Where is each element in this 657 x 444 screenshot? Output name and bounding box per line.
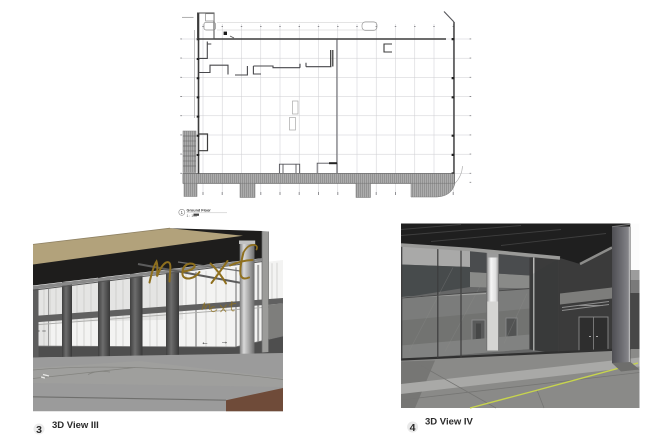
svg-text:3D View III: 3D View III (52, 420, 99, 431)
svg-text:1: 1 (181, 210, 184, 215)
svg-text:3D View IV: 3D View IV (425, 417, 474, 428)
svg-text:3: 3 (36, 424, 42, 436)
svg-text:→: → (221, 337, 229, 346)
svg-text:Ground Floor: Ground Floor (187, 209, 212, 213)
svg-text:4: 4 (410, 422, 416, 434)
svg-text:←: ← (201, 338, 209, 347)
